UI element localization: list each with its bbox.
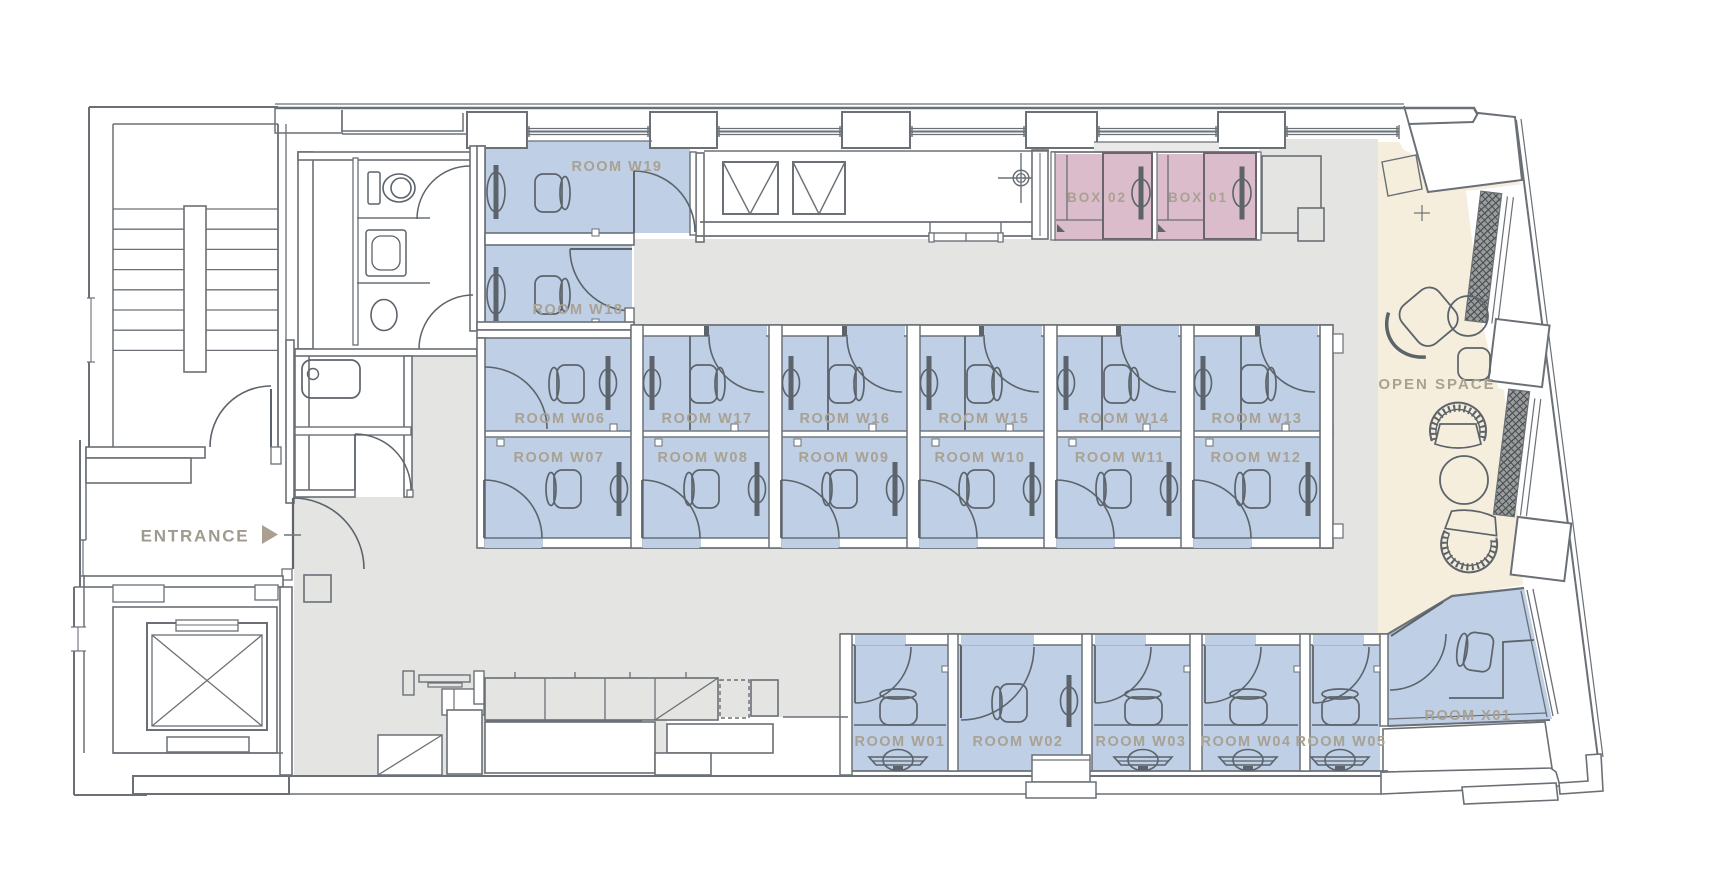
svg-text:ENTRANCE: ENTRANCE bbox=[141, 527, 250, 546]
svg-text:ROOM W15: ROOM W15 bbox=[939, 411, 1030, 427]
svg-text:ROOM W07: ROOM W07 bbox=[514, 450, 605, 466]
svg-text:BOX 02: BOX 02 bbox=[1067, 190, 1127, 205]
svg-text:ROOM X01: ROOM X01 bbox=[1425, 708, 1512, 724]
svg-text:ROOM W05: ROOM W05 bbox=[1296, 734, 1387, 750]
svg-text:ROOM W18: ROOM W18 bbox=[533, 302, 624, 318]
svg-text:BOX 01: BOX 01 bbox=[1168, 190, 1228, 205]
svg-text:ROOM W02: ROOM W02 bbox=[973, 734, 1064, 750]
svg-text:ROOM W01: ROOM W01 bbox=[855, 734, 946, 750]
svg-text:ROOM W09: ROOM W09 bbox=[799, 450, 890, 466]
svg-text:ROOM W11: ROOM W11 bbox=[1075, 450, 1165, 466]
svg-text:ROOM W13: ROOM W13 bbox=[1212, 411, 1303, 427]
svg-text:ROOM W10: ROOM W10 bbox=[935, 450, 1026, 466]
svg-text:ROOM W19: ROOM W19 bbox=[572, 159, 663, 175]
svg-text:ROOM W17: ROOM W17 bbox=[662, 411, 753, 427]
svg-text:OPEN SPACE: OPEN SPACE bbox=[1378, 376, 1495, 393]
svg-text:ROOM W04: ROOM W04 bbox=[1201, 734, 1292, 750]
svg-text:ROOM W16: ROOM W16 bbox=[800, 411, 891, 427]
svg-text:ROOM W14: ROOM W14 bbox=[1079, 411, 1170, 427]
svg-text:ROOM W08: ROOM W08 bbox=[658, 450, 749, 466]
svg-text:ROOM W12: ROOM W12 bbox=[1211, 450, 1302, 466]
svg-text:ROOM W03: ROOM W03 bbox=[1096, 734, 1187, 750]
svg-text:ROOM W06: ROOM W06 bbox=[515, 411, 606, 427]
